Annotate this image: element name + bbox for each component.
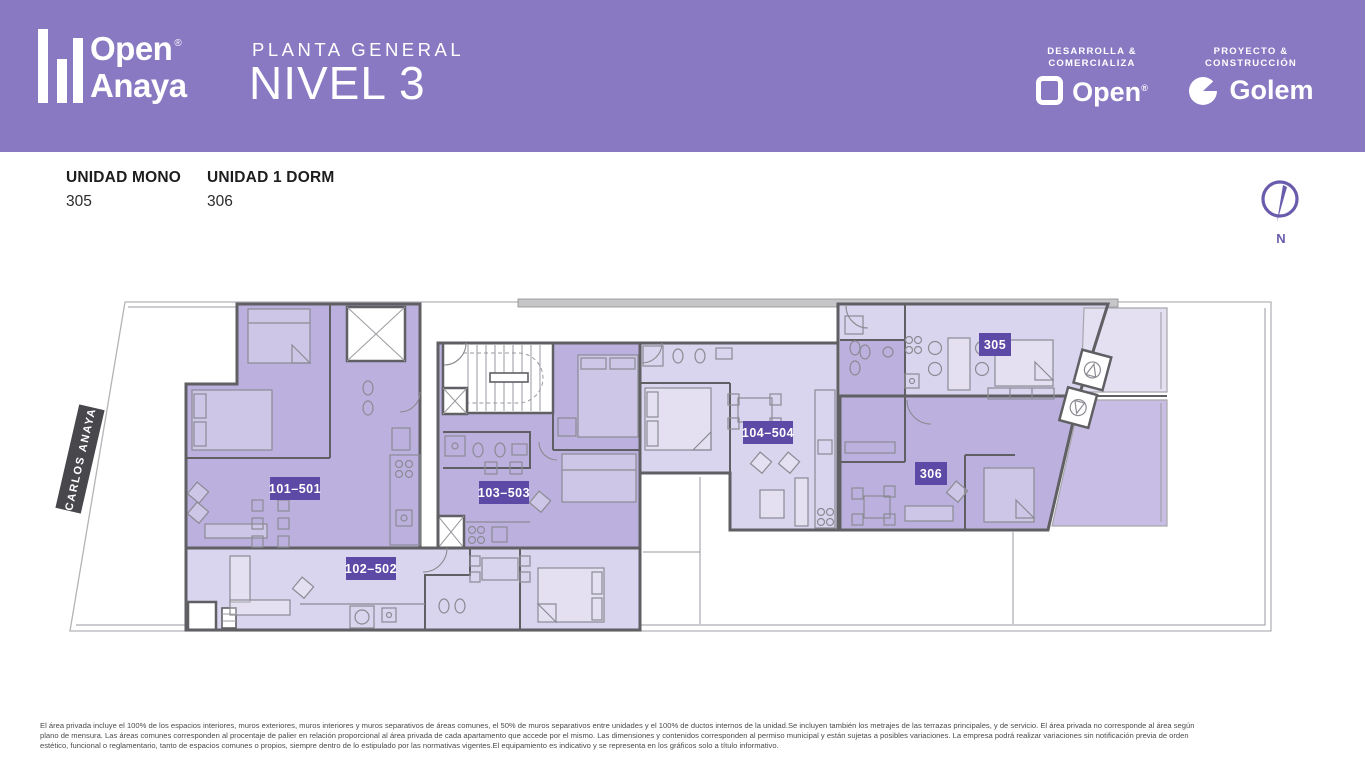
bed-icon — [192, 390, 272, 450]
unit-badge-103-503-label: 103–503 — [478, 486, 530, 500]
north-label: N — [1276, 231, 1285, 246]
balcony-box — [188, 602, 216, 630]
kitchen-island-icon — [948, 338, 970, 390]
sofa-icon — [230, 556, 250, 602]
disclaimer-line-3: estético, funcional o reglamentario, tan… — [40, 741, 1335, 751]
disclaimer-line-2: plano de mensura. Las áreas comunes corr… — [40, 731, 1335, 741]
unit-badge-306: 306 — [915, 462, 947, 485]
disclaimer-line-1: El área privada incluye el 100% de los e… — [40, 721, 1335, 731]
sofa-icon — [905, 506, 953, 521]
street-label: CARLOS ANAYA — [55, 404, 104, 513]
north-compass-icon: N — [1263, 182, 1297, 246]
unit-badge-102-502-label: 102–502 — [345, 562, 397, 576]
disclaimer-text: El área privada incluye el 100% de los e… — [40, 721, 1335, 750]
bed-icon — [578, 355, 638, 437]
unit-badge-305-label: 305 — [984, 338, 1006, 352]
sofa-icon — [230, 600, 290, 615]
unit-badge-103-503: 103–503 — [478, 481, 530, 504]
sofa-icon — [795, 478, 808, 526]
bed-icon — [248, 309, 310, 363]
unit-badge-104-504: 104–504 — [742, 421, 794, 444]
unit-badge-305: 305 — [979, 333, 1011, 356]
floorplan-page: Open® Anaya PLANTA GENERAL NIVEL 3 DESAR… — [0, 0, 1365, 766]
side-table-icon — [760, 490, 784, 518]
unit-badge-101-501: 101–501 — [269, 477, 321, 500]
unit-badge-104-504-label: 104–504 — [742, 426, 794, 440]
sofa-icon — [562, 454, 636, 502]
unit-badge-102-502: 102–502 — [345, 557, 397, 580]
bed-icon — [984, 468, 1034, 522]
bed-icon — [645, 388, 711, 450]
unit-badge-306-label: 306 — [920, 467, 942, 481]
floorplan-drawing: 101–501 102–502 103–503 104–504 305 306 — [0, 0, 1365, 766]
unit-badge-101-501-label: 101–501 — [269, 482, 321, 496]
